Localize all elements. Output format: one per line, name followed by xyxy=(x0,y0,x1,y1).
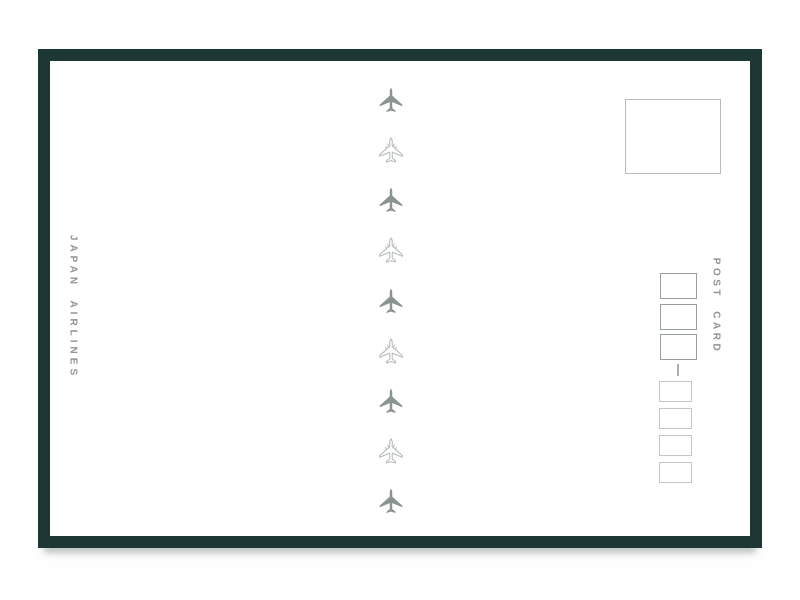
postal-code-box xyxy=(659,408,692,429)
postal-code-box xyxy=(659,381,692,402)
postal-code-box xyxy=(659,462,692,483)
postal-code-box xyxy=(660,304,697,330)
postal-code-dash-icon xyxy=(677,364,679,376)
plane-outline-icon xyxy=(378,338,404,365)
plane-solid-icon xyxy=(378,187,404,214)
postal-code-upper-group xyxy=(660,273,697,360)
postal-code-lower-group xyxy=(659,381,692,483)
postcard-label: POST CARD xyxy=(711,258,722,354)
stamp-box xyxy=(625,99,721,174)
jal-brand-text: JAPAN AIRLINES xyxy=(68,235,79,379)
plane-outline-icon xyxy=(378,137,404,164)
scanned-page: JAPAN AIRLINES POST CARD xyxy=(0,0,800,600)
postcard: JAPAN AIRLINES POST CARD xyxy=(38,49,762,548)
postal-code-box xyxy=(660,273,697,299)
plane-motif-column xyxy=(376,87,406,515)
plane-outline-icon xyxy=(378,438,404,465)
plane-solid-icon xyxy=(378,87,404,114)
plane-solid-icon xyxy=(378,488,404,515)
plane-outline-icon xyxy=(378,237,404,264)
postal-code-box xyxy=(660,334,697,360)
postal-code-box xyxy=(659,435,692,456)
plane-solid-icon xyxy=(378,388,404,415)
plane-solid-icon xyxy=(378,288,404,315)
